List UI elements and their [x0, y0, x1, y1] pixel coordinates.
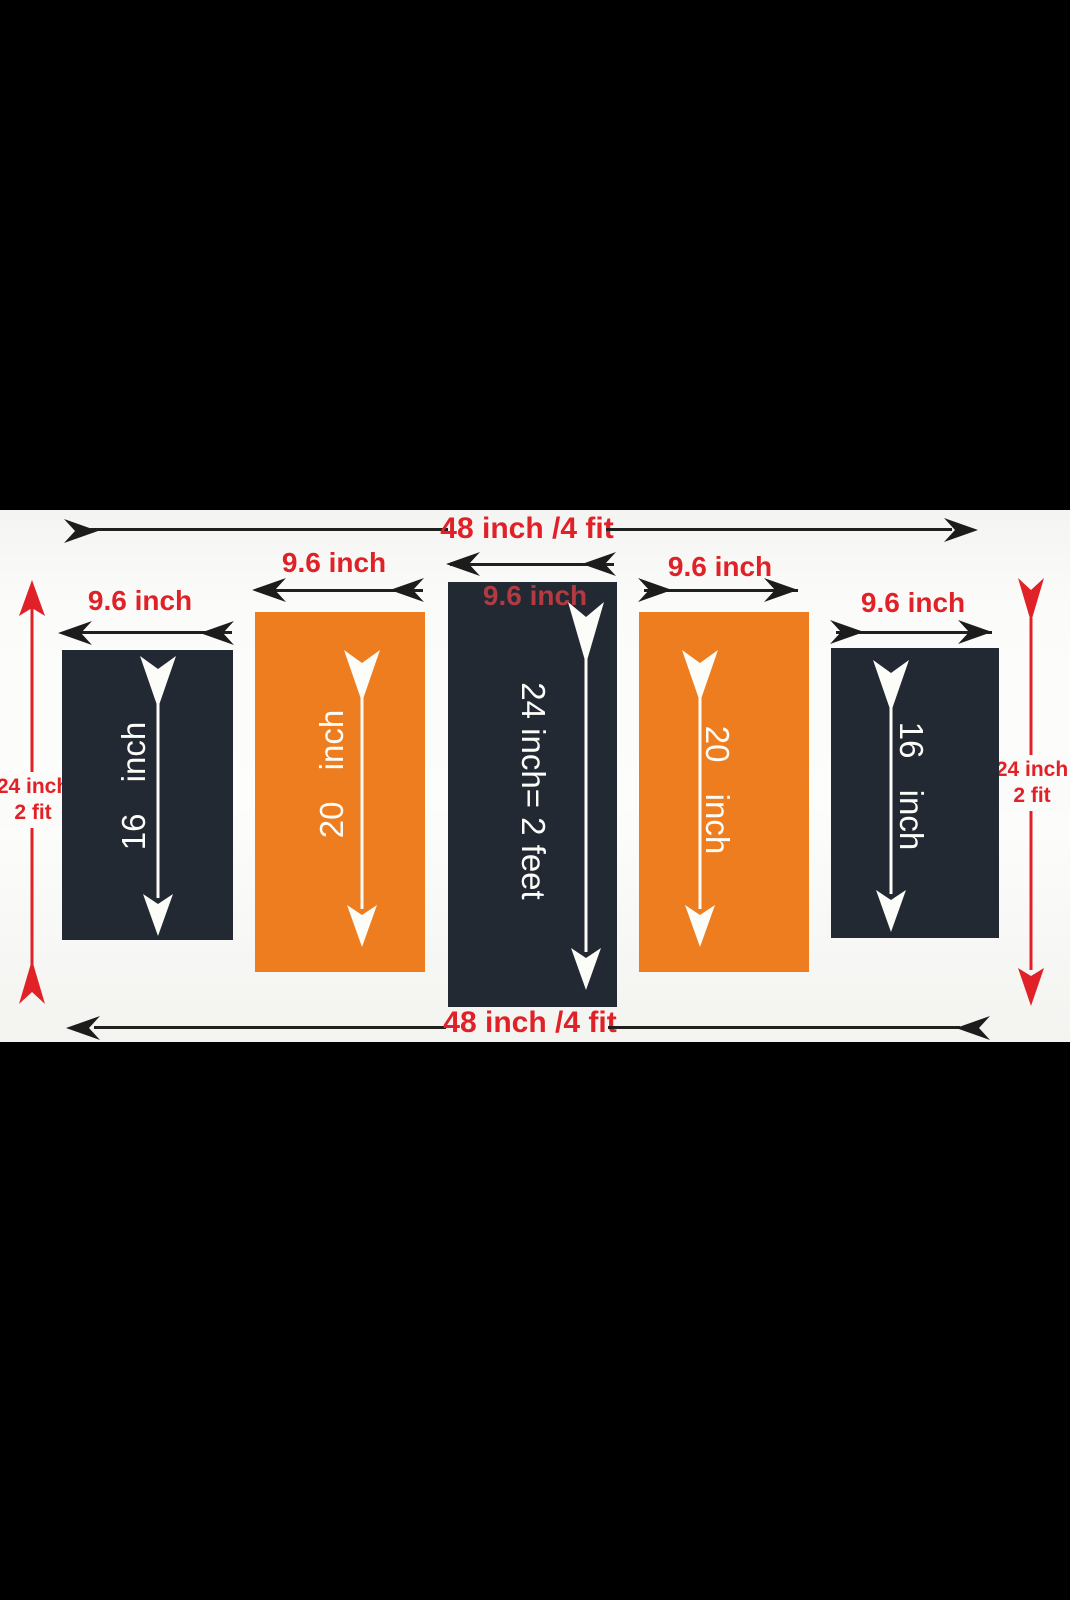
right-height-line2: 2 fit: [996, 783, 1068, 809]
panel-5-height-label: 16 inch: [891, 636, 931, 936]
bottom-width-line-right: [608, 1026, 960, 1029]
arrowhead-right-icon: [944, 518, 978, 542]
arrowhead-left-icon: [446, 552, 480, 576]
right-height-line1: 24 inch: [996, 757, 1068, 783]
left-height-line1: 24 inch: [0, 774, 69, 800]
panel-4-height-label: 20 inch: [697, 640, 737, 940]
arrowhead-left-icon: [252, 578, 286, 602]
panel-1-height-label: 16 inch: [114, 636, 154, 936]
top-width-label: 48 inch /4 fit: [440, 512, 613, 546]
right-height-label: 24 inch 2 fit: [991, 755, 1070, 811]
arrowhead-left-icon: [956, 1016, 990, 1040]
arrowhead-right-icon: [64, 519, 98, 543]
panel-2-width-label: 9.6 inch: [282, 548, 386, 578]
left-height-line2: 2 fit: [0, 800, 69, 826]
bottom-width-label: 48 inch /4 fit: [443, 1006, 616, 1040]
arrowhead-left-icon: [200, 621, 234, 645]
bottom-width-line-left: [94, 1026, 446, 1029]
panel-2-height-label: 20 inch: [312, 624, 352, 924]
arrowhead-right-icon: [830, 620, 864, 644]
wall-art-dimension-diagram: 48 inch /4 fit 48 inch /4 fit 24 inch 2 …: [0, 0, 1070, 1600]
top-width-line-left: [90, 528, 448, 531]
panel-1-width-label: 9.6 inch: [88, 586, 192, 616]
arrowhead-left-icon: [390, 578, 424, 602]
arrowhead-right-icon: [764, 578, 798, 602]
arrowhead-left-icon: [58, 621, 92, 645]
arrowhead-right-icon: [958, 620, 992, 644]
top-width-line-right: [606, 528, 952, 531]
arrowhead-right-icon: [638, 578, 672, 602]
panel-4-width-label: 9.6 inch: [668, 552, 772, 582]
panel-3-height-label: 24 inch= 2 feet: [513, 641, 553, 941]
panel-3-height-arrow-icon: [564, 602, 608, 990]
panel-5-width-label: 9.6 inch: [861, 588, 965, 618]
arrowhead-left-icon: [582, 552, 616, 576]
